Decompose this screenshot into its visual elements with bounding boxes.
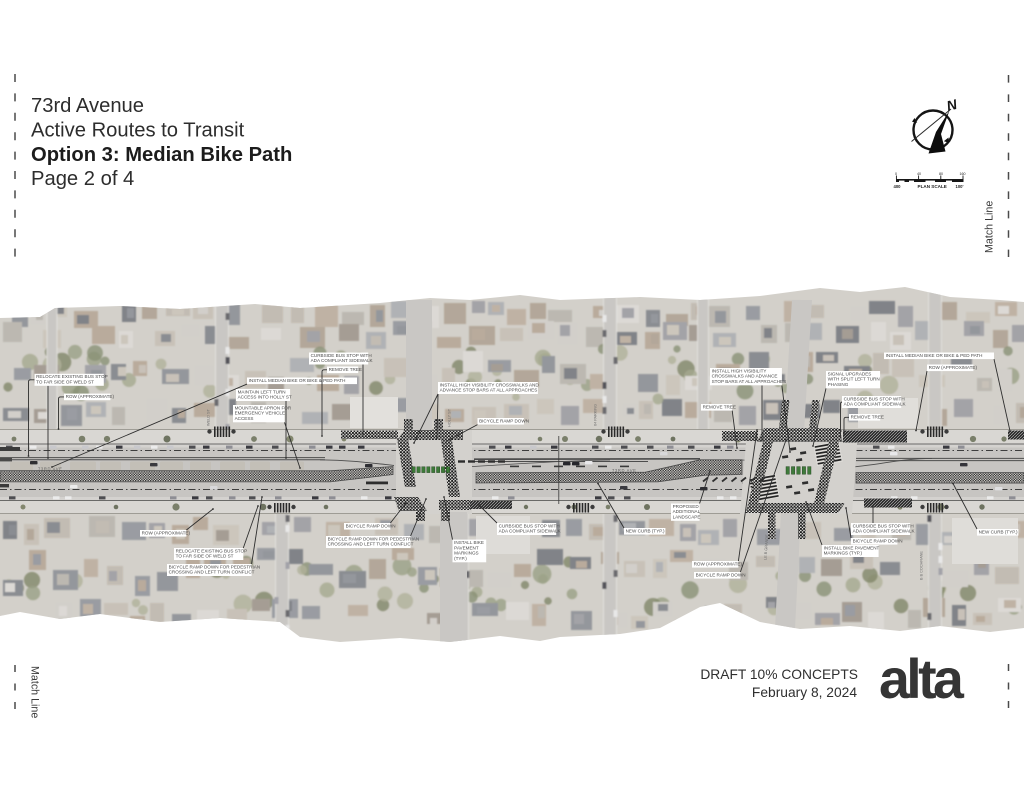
svg-text:INSTALL MEDIAN BIKE OR BIKE &: INSTALL MEDIAN BIKE OR BIKE & PED PATH: [249, 378, 346, 383]
svg-text:CROSSWALKS AND ADVANCE: CROSSWALKS AND ADVANCE: [712, 374, 778, 379]
svg-text:BICYCLE RAMP DOWN: BICYCLE RAMP DOWN: [346, 523, 396, 528]
svg-text:73RD AVE: 73RD AVE: [38, 467, 63, 472]
svg-text:ADA COMPLIANT SIDEWALK: ADA COMPLIANT SIDEWALK: [311, 358, 374, 363]
svg-text:Page 2 of 4: Page 2 of 4: [31, 168, 134, 190]
svg-text:ADA COMPLIANT SIDEWALK: ADA COMPLIANT SIDEWALK: [499, 529, 562, 534]
svg-text:B B COCHRANE: B B COCHRANE: [920, 551, 924, 580]
svg-text:INSTALL HIGH VISIBILITY CROSSW: INSTALL HIGH VISIBILITY CROSSWALKS AND: [440, 382, 540, 387]
svg-text:ADDITIONAL: ADDITIONAL: [673, 509, 701, 514]
svg-text:TO FAR SIDE OF WELD ST: TO FAR SIDE OF WELD ST: [176, 554, 234, 559]
svg-text:CROSSING AND LEFT TURN CONFLIC: CROSSING AND LEFT TURN CONFLICT: [169, 570, 255, 575]
svg-text:ROW (APPROXIMATE): ROW (APPROXIMATE): [66, 394, 115, 399]
svg-text:Active Routes to Transit: Active Routes to Transit: [31, 120, 245, 142]
svg-text:(TYP.): (TYP.): [454, 556, 467, 561]
svg-text:MAINTAIN LEFT TURN: MAINTAIN LEFT TURN: [238, 389, 286, 394]
svg-text:WELD ST: WELD ST: [207, 408, 211, 426]
svg-text:DRAFT 10% CONCEPTS: DRAFT 10% CONCEPTS: [700, 667, 858, 682]
svg-text:NEW CURB (TYP.): NEW CURB (TYP.): [626, 528, 665, 533]
svg-text:ADVANCE STOP BARS AT ALL APPRO: ADVANCE STOP BARS AT ALL APPROACHES: [440, 388, 538, 393]
svg-text:CURBSIDE BUS STOP WITH: CURBSIDE BUS STOP WITH: [853, 523, 914, 528]
svg-text:BICYCLE RAMP DOWN: BICYCLE RAMP DOWN: [479, 418, 529, 423]
svg-text:ROW (APPROXIMATE): ROW (APPROXIMATE): [142, 530, 191, 535]
svg-text:80: 80: [939, 172, 943, 176]
svg-text:REMOVE TREE: REMOVE TREE: [851, 414, 884, 419]
svg-text:73rd Avenue: 73rd Avenue: [31, 95, 144, 117]
svg-text:INSTALL HIGH VISIBILITY: INSTALL HIGH VISIBILITY: [712, 368, 767, 373]
svg-text:CURBSIDE BUS STOP WITH: CURBSIDE BUS STOP WITH: [499, 523, 560, 528]
svg-text:ACCESS: ACCESS: [235, 416, 254, 421]
svg-text:ROW (APPROXIMATE): ROW (APPROXIMATE): [694, 561, 743, 566]
svg-text:RELOCATE EXISTING BUS STOP: RELOCATE EXISTING BUS STOP: [176, 548, 248, 553]
svg-text:REMOVE TREE: REMOVE TREE: [329, 367, 362, 372]
svg-text:CROSSING AND LEFT TURN CONFLIC: CROSSING AND LEFT TURN CONFLICT: [328, 542, 414, 547]
svg-text:BICYCLE RAMP DOWN: BICYCLE RAMP DOWN: [696, 572, 746, 577]
svg-text:100': 100': [956, 184, 964, 189]
svg-text:CURBSIDE BUS STOP WITH: CURBSIDE BUS STOP WITH: [844, 396, 905, 401]
svg-text:ADA COMPLIANT SIDEWALK: ADA COMPLIANT SIDEWALK: [844, 402, 907, 407]
svg-text:ACCESS INTO HOLLY ST: ACCESS INTO HOLLY ST: [238, 395, 292, 400]
svg-text:EMERGENCY VEHICLE: EMERGENCY VEHICLE: [235, 411, 285, 416]
svg-text:73RD AVE: 73RD AVE: [612, 468, 637, 473]
svg-text:alta: alta: [879, 648, 965, 710]
svg-text:MARKINGS (TYP.): MARKINGS (TYP.): [824, 551, 863, 556]
svg-text:BICYCLE RAMP DOWN FOR PEDESTRI: BICYCLE RAMP DOWN FOR PEDESTRIAN: [169, 564, 261, 569]
svg-text:PROPOSED: PROPOSED: [673, 504, 700, 509]
svg-text:RELOCATE EXISTING BUS STOP: RELOCATE EXISTING BUS STOP: [36, 374, 108, 379]
svg-text:NEW CURB (TYP.): NEW CURB (TYP.): [979, 529, 1018, 534]
svg-text:64 PARKING: 64 PARKING: [594, 404, 598, 426]
svg-text:STOP BARS AT ALL APPROACHES: STOP BARS AT ALL APPROACHES: [712, 379, 787, 384]
svg-text:INSTALL BIKE: INSTALL BIKE: [454, 540, 484, 545]
svg-text:ADA COMPLIANT SIDEWALK: ADA COMPLIANT SIDEWALK: [853, 529, 916, 534]
svg-text:CURBSIDE BUS STOP WITH: CURBSIDE BUS STOP WITH: [311, 353, 372, 358]
svg-text:Option 3: Median Bike Path: Option 3: Median Bike Path: [31, 144, 292, 166]
svg-text:LANDSCAPE: LANDSCAPE: [673, 515, 701, 520]
svg-text:MOUNTABLE APRON FOR: MOUNTABLE APRON FOR: [235, 405, 292, 410]
svg-text:WITH SPLIT LEFT TURN: WITH SPLIT LEFT TURN: [828, 377, 880, 382]
svg-text:BICYCLE RAMP DOWN: BICYCLE RAMP DOWN: [853, 538, 903, 543]
svg-text:400: 400: [894, 184, 902, 189]
svg-text:ROW (APPROXIMATE): ROW (APPROXIMATE): [929, 365, 978, 370]
svg-text:N: N: [945, 96, 960, 114]
svg-text:INSTALL BIKE PAVEMENT: INSTALL BIKE PAVEMENT: [824, 545, 880, 550]
svg-text:REMOVE TREE: REMOVE TREE: [703, 404, 736, 409]
svg-text:HOLLY ST: HOLLY ST: [448, 408, 452, 427]
svg-text:TO FAR SIDE OF WELD ST: TO FAR SIDE OF WELD ST: [36, 380, 94, 385]
svg-text:SIGNAL UPGRADES: SIGNAL UPGRADES: [828, 371, 872, 376]
svg-text:INSTALL MEDIAN BIKE OR BIKE &: INSTALL MEDIAN BIKE OR BIKE & PED PATH: [886, 353, 983, 358]
svg-text:40: 40: [917, 172, 921, 176]
svg-text:Match Line: Match Line: [29, 666, 41, 718]
svg-text:PAVEMENT: PAVEMENT: [454, 545, 479, 550]
svg-text:0: 0: [895, 172, 897, 176]
svg-text:MARKINGS: MARKINGS: [454, 551, 479, 556]
svg-text:Match Line: Match Line: [984, 201, 996, 253]
svg-text:160: 160: [960, 172, 966, 176]
svg-text:PLAN SCALE: PLAN SCALE: [918, 184, 947, 189]
svg-text:PHASING: PHASING: [828, 382, 849, 387]
svg-text:BICYCLE RAMP DOWN FOR PEDESTRI: BICYCLE RAMP DOWN FOR PEDESTRIAN: [328, 536, 420, 541]
svg-text:February 8, 2024: February 8, 2024: [752, 685, 857, 700]
